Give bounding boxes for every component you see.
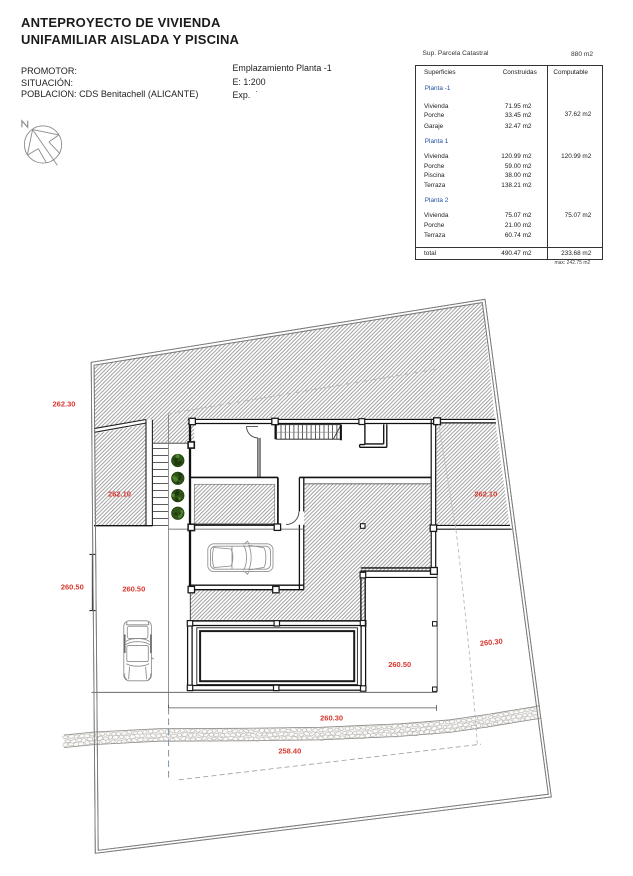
svg-text:262.10: 262.10 <box>474 490 497 499</box>
svg-text:260.50: 260.50 <box>122 584 145 593</box>
svg-text:260.50: 260.50 <box>388 660 411 669</box>
svg-text:262.30: 262.30 <box>53 400 76 409</box>
svg-text:260.50: 260.50 <box>61 583 84 592</box>
svg-text:262.10: 262.10 <box>108 490 131 499</box>
svg-text:258.40: 258.40 <box>278 747 301 756</box>
svg-text:260.30: 260.30 <box>320 713 343 722</box>
svg-text:260.30: 260.30 <box>479 637 503 648</box>
